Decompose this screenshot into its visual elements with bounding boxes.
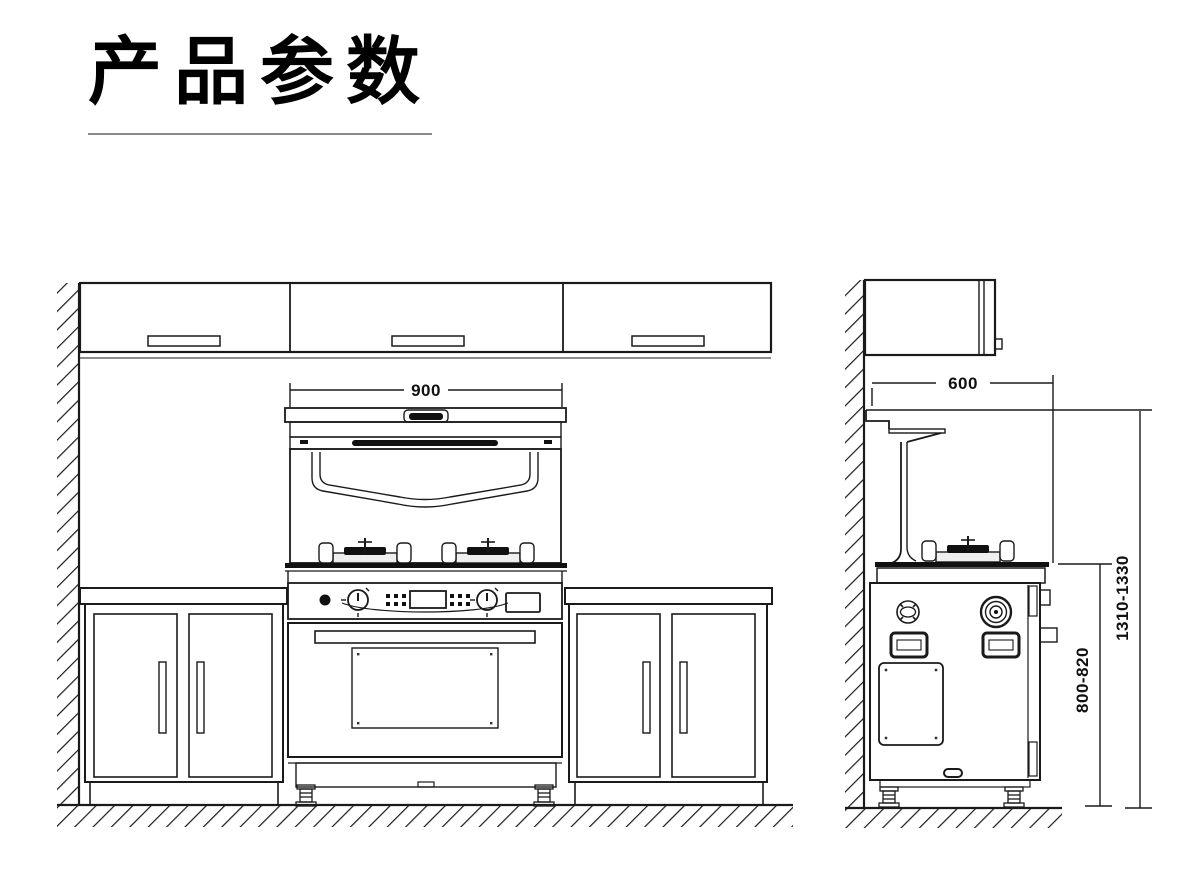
- left-control-knob: [341, 588, 369, 617]
- oven-handle: [315, 631, 535, 643]
- adjustable-foot-side-left: [879, 787, 899, 807]
- right-control-knob: [470, 588, 498, 617]
- motor-cap: [981, 597, 1011, 627]
- cooktop-burner-right: [442, 538, 534, 563]
- power-indicator: [320, 595, 331, 606]
- hood-deflector: [312, 452, 538, 507]
- dimension-label-depth: 600: [948, 374, 978, 393]
- technical-drawing: 900: [0, 0, 1200, 872]
- rear-hook: [1040, 590, 1050, 605]
- range-hood-side-profile: [866, 410, 1152, 563]
- adjustable-foot-side-right: [1004, 787, 1024, 807]
- cabinet-door: [577, 614, 660, 777]
- oven-window: [352, 648, 498, 728]
- hood-vent-slot: [300, 440, 552, 446]
- gas-inlet: [897, 601, 919, 623]
- floor-hatch-side: [845, 808, 1062, 828]
- adjustable-foot-right: [534, 785, 554, 806]
- oven-door: [288, 623, 562, 787]
- cabinet-handle: [632, 336, 704, 346]
- cooktop-burner-left: [319, 538, 411, 563]
- rear-hook: [1040, 628, 1057, 642]
- cabinet-plinth: [575, 782, 763, 805]
- cabinet-handle: [197, 662, 204, 733]
- display-window: [410, 591, 446, 608]
- badge-slot: [944, 769, 962, 777]
- cabinet-handle: [643, 662, 650, 733]
- dimension-depth-600: 600: [872, 374, 1053, 563]
- wall-hatch-left: [57, 283, 79, 805]
- dimension-label-width: 900: [411, 381, 441, 400]
- adjustable-foot-left: [296, 785, 316, 806]
- hob-surface: [285, 563, 567, 583]
- vent-grille-right: [983, 633, 1019, 657]
- base-unit-side: [870, 583, 1057, 787]
- indicator-dots-right: [450, 594, 470, 606]
- cabinet-door: [94, 614, 177, 777]
- control-panel: [288, 583, 562, 619]
- cooktop-burner-side: [922, 536, 1014, 562]
- indicator-dots-left: [386, 594, 406, 606]
- dimension-label-total-height: 1310-1330: [1113, 555, 1132, 641]
- base-cabinet-left: [80, 588, 287, 805]
- base-cabinet-right: [565, 588, 772, 805]
- vent-grille-left: [891, 633, 927, 657]
- timer-button: [506, 593, 540, 612]
- page-background: 产品参数: [0, 0, 1200, 872]
- cabinet-handle: [148, 336, 220, 346]
- floor-hatch-front: [57, 805, 793, 827]
- stove-plinth: [296, 763, 556, 787]
- cabinet-handle: [680, 662, 687, 733]
- dimension-width-900: 900: [290, 381, 562, 407]
- hob-surface-side: [875, 562, 1049, 583]
- side-view-drawing: 600: [845, 280, 1152, 828]
- cabinet-handle: [159, 662, 166, 733]
- access-panel: [879, 663, 943, 745]
- cabinet-handle: [392, 336, 464, 346]
- dimension-total-height: 1310-1330: [1113, 411, 1152, 808]
- hood-badge: [404, 410, 448, 422]
- wall-hatch-side: [845, 280, 864, 808]
- wall-cabinet-side: [865, 280, 1002, 355]
- dimension-counter-height: 800-820: [1058, 564, 1112, 806]
- upper-cabinets: [80, 283, 771, 358]
- cabinet-plinth: [90, 782, 278, 805]
- range-hood-front: [285, 408, 566, 563]
- cabinet-door: [672, 614, 755, 777]
- cabinet-door: [189, 614, 272, 777]
- dimension-label-counter-height: 800-820: [1073, 647, 1092, 713]
- front-view-drawing: 900: [57, 283, 793, 827]
